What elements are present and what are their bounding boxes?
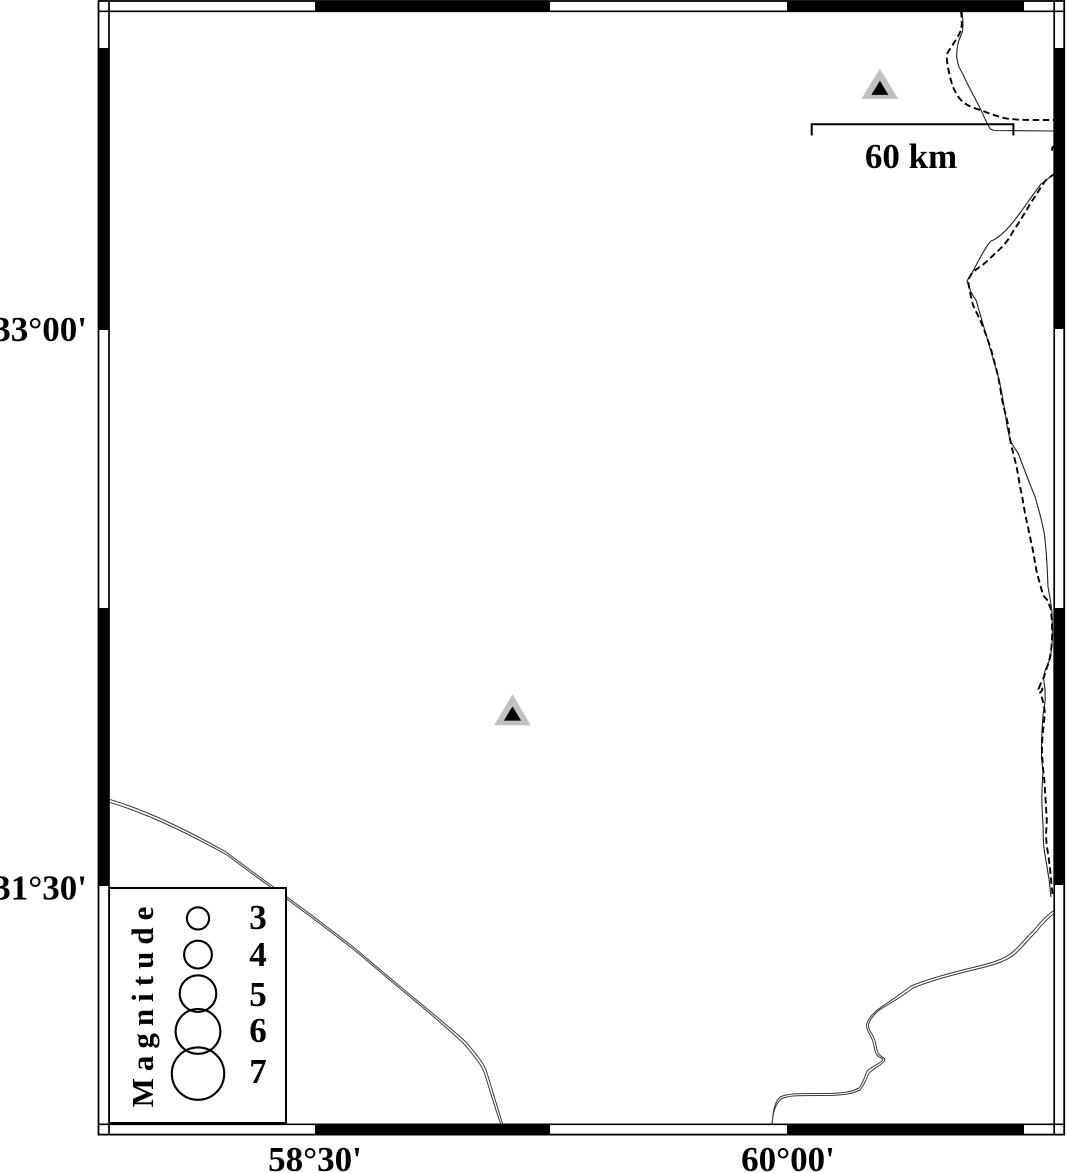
svg-text:31°30': 31°30'	[0, 869, 87, 908]
svg-text:3: 3	[249, 898, 267, 937]
svg-text:6: 6	[249, 1011, 267, 1050]
svg-text:33°00': 33°00'	[0, 310, 87, 349]
svg-text:4: 4	[249, 935, 267, 974]
svg-text:60 km: 60 km	[865, 137, 957, 176]
svg-text:7: 7	[249, 1052, 267, 1091]
svg-text:5: 5	[249, 975, 267, 1014]
svg-text:60°00': 60°00'	[741, 1140, 835, 1173]
svg-text:Magnitude: Magnitude	[125, 900, 160, 1108]
svg-text:58°30': 58°30'	[268, 1140, 362, 1173]
